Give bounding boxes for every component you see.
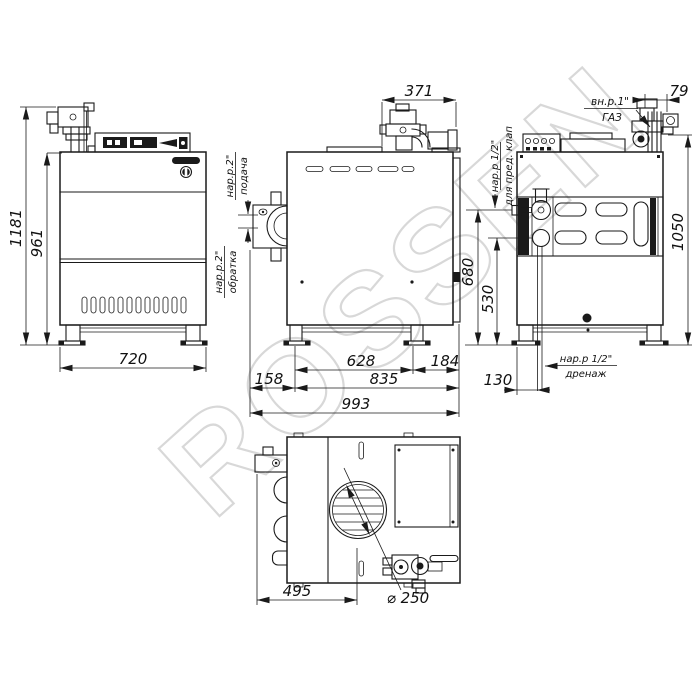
dim-body-depth: 835: [370, 370, 399, 388]
label-return: обратка: [227, 251, 239, 294]
front-view: [47, 103, 207, 345]
side-top-slots: [306, 167, 414, 172]
label-safety: для пред. клап: [504, 126, 515, 207]
boiler-drawing-svg: ROSSEN: [0, 0, 700, 700]
label-supply: подача: [239, 157, 250, 195]
panel-arrow-glyph: [159, 139, 177, 147]
door-lock-knob: [181, 167, 192, 178]
rear-legs: [512, 325, 668, 345]
plan-right-panel: [395, 445, 458, 527]
dim-rear-overhang: 184: [431, 352, 460, 370]
dim-plan-width: 495: [283, 582, 312, 600]
door-vent: [172, 157, 200, 164]
supply-flange: [253, 192, 287, 261]
label-return-thread: нар.р.2": [214, 251, 225, 294]
gas-train-front: [47, 103, 94, 152]
dim-return-port-height: 530: [479, 285, 497, 314]
label-supply-thread: нар.р.2": [225, 155, 236, 198]
dim-supply-port-height: 680: [459, 258, 477, 287]
dim-body-height: 961: [28, 229, 46, 258]
dim-leg-spacing: 628: [347, 352, 376, 370]
dim-flue-diameter: ⌀ 250: [387, 589, 429, 607]
dim-gas-offset: 79: [669, 82, 688, 100]
technical-drawing: ROSSEN: [0, 0, 700, 700]
plan-gas-valve: [383, 555, 458, 593]
dim-top-assembly-depth: 371: [405, 82, 434, 100]
dim-total-depth: 993: [342, 395, 371, 413]
label-drain: дренаж: [564, 369, 606, 380]
gas-train-top: [380, 104, 457, 150]
drain-pipe: [538, 246, 543, 391]
dim-drain-offset: 130: [484, 371, 513, 389]
label-drain-thread: нар.р 1/2": [560, 354, 612, 365]
dim-total-height: 1181: [7, 209, 25, 247]
label-safety-thread: нар.р 1/2": [490, 140, 501, 192]
dim-rear-height: 1050: [669, 213, 687, 251]
label-gas-thread: вн.р.1": [591, 96, 629, 108]
dim-front-overhang: 158: [255, 370, 284, 388]
dim-front-width: 720: [119, 350, 148, 368]
front-legs: [59, 325, 207, 345]
control-panel: [88, 133, 190, 152]
label-gas: ГАЗ: [602, 112, 622, 124]
front-vent-slots: [82, 297, 186, 313]
